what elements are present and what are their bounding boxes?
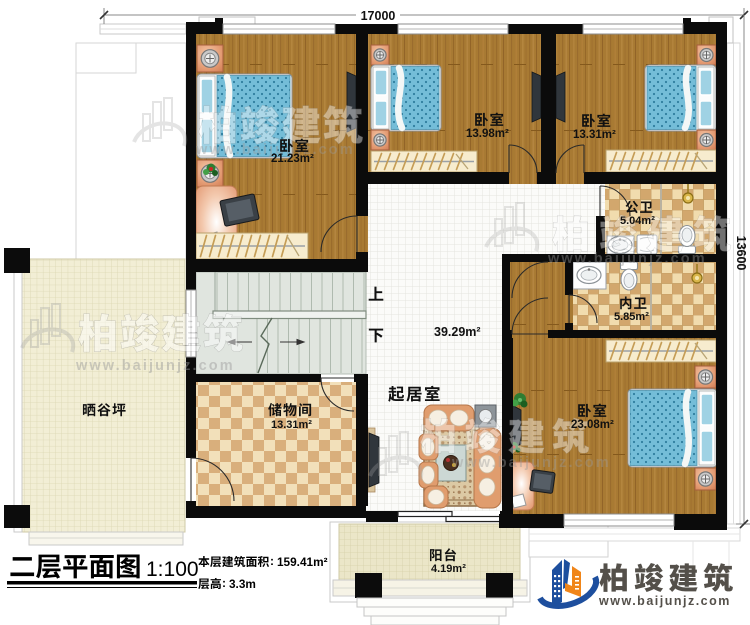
- svg-text:17000: 17000: [361, 9, 396, 23]
- svg-text:13.31m²: 13.31m²: [573, 129, 616, 141]
- svg-text:5.04m²: 5.04m²: [620, 215, 655, 227]
- svg-text:www.baijunjz.com: www.baijunjz.com: [547, 251, 707, 267]
- svg-text:13600: 13600: [734, 236, 748, 271]
- svg-text:159.41m²: 159.41m²: [277, 555, 328, 569]
- svg-text:13.31m²: 13.31m²: [271, 419, 312, 431]
- svg-text:www.baijunjz.com: www.baijunjz.com: [451, 455, 611, 471]
- svg-text:13.98m²: 13.98m²: [466, 128, 509, 140]
- svg-text:39.29m²: 39.29m²: [434, 325, 481, 339]
- svg-text:3.3m: 3.3m: [229, 577, 256, 591]
- svg-text:5.85m²: 5.85m²: [614, 311, 649, 323]
- svg-text:23.08m²: 23.08m²: [571, 419, 614, 431]
- svg-text::: :: [270, 554, 274, 568]
- svg-text:www.baijunjz.com: www.baijunjz.com: [75, 358, 235, 374]
- svg-text:1:100: 1:100: [146, 558, 199, 581]
- svg-text:4.19m²: 4.19m²: [431, 563, 466, 575]
- svg-text:www.baijunjz.com: www.baijunjz.com: [598, 594, 731, 608]
- svg-text::: :: [222, 576, 226, 590]
- svg-text:21.23m²: 21.23m²: [271, 153, 314, 165]
